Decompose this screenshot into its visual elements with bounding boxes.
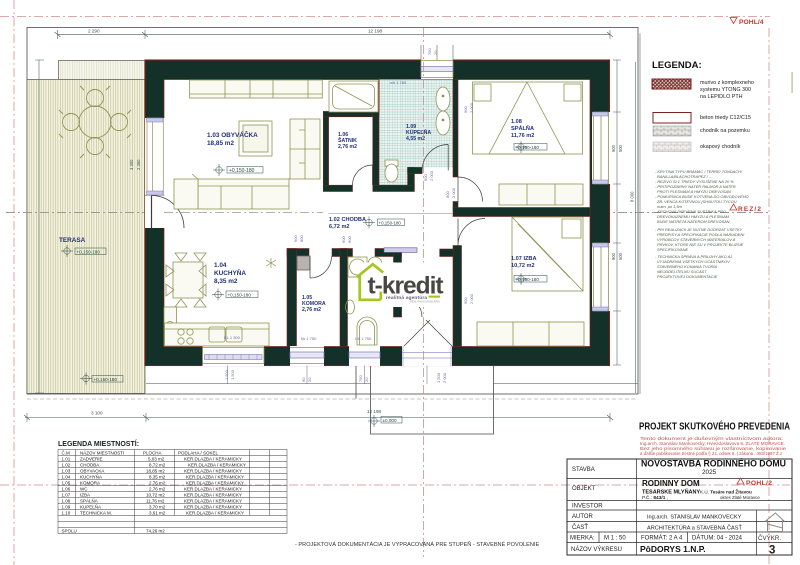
svg-text:KUCHYŇA: KUCHYŇA [214, 268, 246, 277]
svg-text:RODINNY DOM: RODINNY DOM [642, 479, 700, 488]
svg-text:okapový chodník: okapový chodník [700, 144, 741, 150]
svg-text:3: 3 [769, 545, 775, 557]
svg-text:750: 750 [427, 48, 432, 55]
svg-text:PODLAHA / SOKEL: PODLAHA / SOKEL [178, 451, 219, 456]
svg-text:600: 600 [347, 236, 352, 243]
svg-text:KOMORA: KOMORA [80, 481, 100, 486]
svg-text:1.10: 1.10 [62, 511, 71, 516]
svg-text:ŠATNIK: ŠATNIK [338, 136, 357, 144]
svg-text:18,85 m2: 18,85 m2 [207, 140, 234, 147]
svg-text:LEGENDA:: LEGENDA: [652, 60, 702, 71]
svg-text:800: 800 [299, 235, 304, 242]
svg-text:Uh 1 750: Uh 1 750 [355, 336, 372, 341]
svg-text:KER.DLAZBA / KERAMICKY: KER.DLAZBA / KERAMICKY [186, 511, 244, 516]
svg-text:M 1 : 50: M 1 : 50 [604, 536, 626, 542]
svg-text:KER.DLAZBA / KERAMICKY: KER.DLAZBA / KERAMICKY [184, 457, 242, 462]
svg-text:P.Č.: 843/1 ,: P.Č.: 843/1 , [642, 494, 668, 501]
svg-text:2 000: 2 000 [429, 170, 434, 181]
svg-text:na LEPIDLO PTH: na LEPIDLO PTH [700, 94, 743, 100]
svg-text:BUDE NATRETA NATEROM DREVOSAN: BUDE NATRETA NATEROM DREVOSAN [657, 219, 730, 224]
svg-text:KER.DLAZBA / KERAMICKY: KER.DLAZBA / KERAMICKY [184, 493, 242, 498]
svg-text:8,35 m2: 8,35 m2 [214, 278, 238, 285]
svg-text:20: 20 [433, 50, 438, 55]
svg-text:2 000: 2 000 [469, 102, 474, 113]
svg-text:NÁZOV VÝKRESU: NÁZOV VÝKRESU [571, 546, 622, 553]
svg-text:ARCHITEKTÚRA a STAVEBNÁ ČASŤ: ARCHITEKTÚRA a STAVEBNÁ ČASŤ [647, 524, 742, 532]
svg-text:1 500: 1 500 [230, 369, 235, 380]
svg-text:PROJEKT SKUTKOVÉHO PREVEDENIA: PROJEKT SKUTKOVÉHO PREVEDENIA [639, 420, 790, 433]
svg-text:INVESTOR: INVESTOR [572, 504, 603, 510]
svg-text:Č.M: Č.M [62, 450, 71, 456]
svg-text:TECHNICKA M.: TECHNICKA M. [80, 511, 112, 516]
svg-text:KER.DLAZBA / KERAMICKY: KER.DLAZBA / KERAMICKY [184, 505, 242, 510]
svg-text:2 000: 2 000 [442, 372, 447, 383]
svg-text:KUCHYŇA: KUCHYŇA [80, 474, 102, 480]
svg-text:1.02: 1.02 [62, 463, 71, 468]
svg-text:CHODBA: CHODBA [80, 463, 99, 468]
svg-text:20: 20 [307, 377, 312, 382]
svg-text:2 350: 2 350 [136, 159, 141, 170]
svg-text:IZBA: IZBA [80, 493, 90, 498]
svg-text:3 100: 3 100 [91, 411, 103, 416]
svg-text:MIERKA:: MIERKA: [570, 536, 595, 542]
svg-text:20: 20 [364, 377, 369, 382]
svg-text:KER.DLAZBA / KERAMICKY: KER.DLAZBA / KERAMICKY [184, 487, 242, 492]
svg-text:1.02 CHODBA: 1.02 CHODBA [329, 217, 366, 223]
svg-text:SPECIFIKOVANE: SPECIFIKOVANE [657, 247, 689, 252]
svg-text:1.09: 1.09 [62, 505, 71, 510]
svg-text:2025: 2025 [702, 469, 717, 476]
svg-text:900: 900 [611, 144, 616, 152]
svg-text:TESARSKE MLYŇANY: TESARSKE MLYŇANY [642, 488, 700, 496]
svg-text:74,26 m2: 74,26 m2 [146, 528, 165, 533]
svg-text:murivo z komplexneho: murivo z komplexneho [700, 80, 754, 86]
svg-text:SPÁLŇA: SPÁLŇA [511, 124, 534, 132]
svg-text:a ďalšie publikovanie trestné: a ďalšie publikovanie trestné podľa § 21… [640, 451, 782, 456]
svg-text:1.04: 1.04 [214, 262, 227, 269]
svg-text:500: 500 [618, 252, 623, 260]
svg-text:1.06: 1.06 [62, 487, 71, 492]
svg-text:wh 1 780: wh 1 780 [390, 80, 407, 85]
svg-text:LEGENDA MIESTNOSTÍ:: LEGENDA MIESTNOSTÍ: [58, 439, 139, 448]
svg-text:+0,150-180: +0,150-180 [379, 220, 402, 225]
svg-text:1.05: 1.05 [62, 481, 71, 486]
svg-text:SPÁLŇA: SPÁLŇA [80, 498, 98, 504]
svg-text:12 198: 12 198 [367, 409, 381, 414]
svg-text:10,72 m2: 10,72 m2 [511, 263, 535, 269]
svg-text:8,72 m2: 8,72 m2 [149, 463, 166, 468]
svg-text:3,70 m2: 3,70 m2 [149, 505, 166, 510]
svg-text:KER.DLAZBA / KERAMICKY: KER.DLAZBA / KERAMICKY [186, 481, 244, 486]
svg-text:+0,150-180: +0,150-180 [77, 249, 101, 254]
svg-text:600: 600 [293, 235, 298, 242]
svg-text:NOVOSTAVBA RODINNÉHO DOMU: NOVOSTAVBA RODINNÉHO DOMU [641, 458, 786, 469]
svg-text:KER.DLAZBA / KERAMICKY: KER.DLAZBA / KERAMICKY [188, 463, 246, 468]
svg-text:8 000: 8 000 [630, 191, 635, 202]
svg-text:3,61 m2: 3,61 m2 [149, 511, 166, 516]
svg-text:DÁTUM: 04 - 2024: DÁTUM: 04 - 2024 [692, 535, 743, 542]
svg-text:1.01: 1.01 [62, 457, 71, 462]
svg-text:12 198: 12 198 [368, 29, 382, 34]
svg-text:2,76 m2: 2,76 m2 [338, 144, 357, 150]
svg-text:800: 800 [445, 191, 450, 198]
svg-text:AUTOR: AUTOR [572, 514, 594, 520]
svg-text:3 300: 3 300 [129, 159, 134, 170]
svg-text:POHL/2: POHL/2 [746, 480, 772, 487]
svg-text:KER.DLAZBA / KERAMICKY: KER.DLAZBA / KERAMICKY [184, 469, 242, 474]
svg-text:+0,150-180: +0,150-180 [229, 168, 255, 174]
svg-text:1.03 OBYVÁČKA: 1.03 OBYVÁČKA [207, 130, 258, 139]
svg-text:OBYVACKA: OBYVACKA [80, 469, 104, 474]
svg-text:Ing.arch. STANISLAV MANKOVECKY: Ing.arch. STANISLAV MANKOVECKY [647, 515, 742, 521]
svg-text:750: 750 [358, 375, 363, 382]
svg-text:STAVBA: STAVBA [572, 467, 595, 473]
svg-text:2 000: 2 000 [469, 293, 474, 304]
svg-text:6,72 m2: 6,72 m2 [329, 224, 350, 230]
svg-text:90: 90 [301, 377, 306, 382]
svg-text:2 290: 2 290 [88, 29, 100, 34]
svg-text:1.08: 1.08 [511, 119, 522, 125]
svg-text:K.U. Tesáre nad Žitavou: K.U. Tesáre nad Žitavou [700, 488, 752, 495]
svg-text:ČVÝKR.: ČVÝKR. [758, 535, 781, 542]
svg-text:KER.DLAZBA / KERAMICKY: KER.DLAZBA / KERAMICKY [186, 475, 244, 480]
svg-text:1 500: 1 500 [224, 369, 229, 380]
svg-text:ČASŤ: ČASŤ [572, 523, 588, 531]
svg-text:4,55 m2: 4,55 m2 [406, 136, 425, 142]
svg-text:+0,150-180: +0,150-180 [516, 145, 540, 150]
svg-text:1.04: 1.04 [62, 475, 71, 480]
svg-text:TERASA: TERASA [59, 237, 86, 244]
svg-text:REZ/2: REZ/2 [738, 206, 761, 213]
svg-text:KUPEĽŇA: KUPEĽŇA [80, 504, 101, 510]
svg-text:NÁZOV MIESTNOSTI: NÁZOV MIESTNOSTI [80, 450, 124, 456]
svg-text:900: 900 [463, 106, 468, 113]
svg-text:POHL/4: POHL/4 [739, 19, 764, 26]
svg-text:11,76 m2: 11,76 m2 [511, 133, 534, 139]
svg-text:500: 500 [618, 144, 623, 152]
svg-text:REALITNÁ KANCELÁRIA: REALITNÁ KANCELÁRIA [410, 300, 440, 304]
svg-text:900: 900 [611, 252, 616, 260]
svg-text:systemu YTONG 300: systemu YTONG 300 [700, 87, 751, 93]
svg-text:11,76 m2: 11,76 m2 [146, 499, 165, 504]
svg-text:8,35 m2: 8,35 m2 [149, 475, 166, 480]
svg-text:+0,150-180: +0,150-180 [516, 277, 540, 282]
svg-text:okres Zlaté Moravce: okres Zlaté Moravce [720, 495, 760, 500]
svg-text:ZADVERIE: ZADVERIE [80, 457, 103, 462]
svg-text:18,85 m2: 18,85 m2 [146, 469, 165, 474]
svg-text:900: 900 [463, 297, 468, 304]
svg-text:KER.DLAZBA / KERAMICKY: KER.DLAZBA / KERAMICKY [184, 499, 242, 504]
svg-text:600: 600 [341, 236, 346, 243]
svg-text:FORMÁT: 2 A 4: FORMÁT: 2 A 4 [641, 535, 683, 542]
svg-text:chodník na pozemku: chodník na pozemku [700, 128, 750, 134]
svg-text:2 000: 2 000 [451, 187, 456, 198]
svg-text:PôDORYS 1.N.P.: PôDORYS 1.N.P. [640, 544, 706, 554]
svg-text:OBJEKT: OBJEKT [572, 486, 596, 492]
svg-text:±0,000: ±0,000 [383, 418, 397, 423]
svg-text:BL 1 300: BL 1 300 [224, 335, 241, 340]
svg-text:WC: WC [80, 487, 88, 492]
svg-text:1.07: 1.07 [62, 493, 71, 498]
svg-text:SPOLU: SPOLU [62, 528, 77, 533]
svg-text:- PROJEKTOVÁ DOKUMENTÁCIA JE V: - PROJEKTOVÁ DOKUMENTÁCIA JE VYPRACOVANÁ… [295, 541, 539, 548]
svg-text:2,76 m2: 2,76 m2 [149, 487, 166, 492]
svg-text:1.03: 1.03 [62, 469, 71, 474]
svg-text:1.07 IZBA: 1.07 IZBA [511, 256, 537, 262]
svg-text:5,03 m2: 5,03 m2 [148, 457, 165, 462]
svg-text:PROJEKTOVEJ DOKUMENTACIE: PROJEKTOVEJ DOKUMENTACIE [657, 274, 718, 279]
svg-text:+0,150-180: +0,150-180 [228, 292, 252, 297]
svg-text:1 500: 1 500 [436, 372, 441, 383]
svg-text:2,76 m2: 2,76 m2 [149, 481, 166, 486]
svg-text:beton triedy C12/C15: beton triedy C12/C15 [700, 115, 751, 121]
svg-text:1.08: 1.08 [62, 499, 71, 504]
svg-text:2,76 m2: 2,76 m2 [302, 307, 321, 313]
svg-text:+0,150-180: +0,150-180 [94, 377, 118, 382]
svg-text:10,72 m2: 10,72 m2 [146, 493, 165, 498]
svg-text:KÚPEĽŇA: KÚPEĽŇA [406, 128, 431, 136]
svg-text:kh 1 750: kh 1 750 [301, 336, 317, 341]
svg-text:PLOCHA: PLOCHA [143, 451, 162, 456]
